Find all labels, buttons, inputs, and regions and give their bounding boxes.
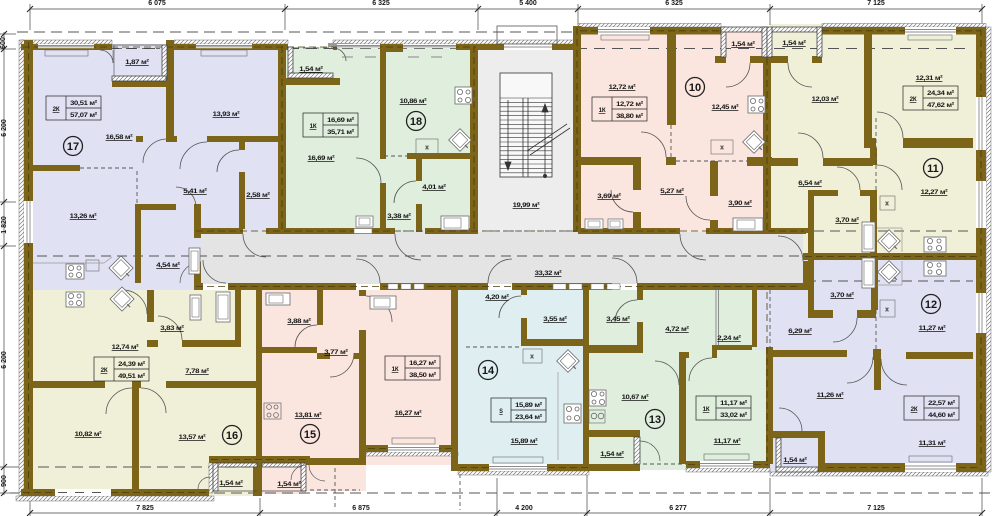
- svg-text:6,29 м²: 6,29 м²: [788, 328, 813, 335]
- svg-text:10: 10: [689, 82, 701, 94]
- svg-text:12,31 м²: 12,31 м²: [916, 75, 944, 82]
- svg-text:12,74 м²: 12,74 м²: [112, 344, 140, 351]
- svg-text:16,27 м²: 16,27 м²: [395, 410, 423, 417]
- svg-text:15,89 м²: 15,89 м²: [511, 438, 539, 445]
- svg-text:1К: 1К: [310, 123, 318, 130]
- svg-text:12: 12: [925, 299, 937, 311]
- svg-text:2К: 2К: [101, 367, 109, 374]
- svg-text:10,82 м²: 10,82 м²: [75, 431, 103, 438]
- svg-text:18: 18: [410, 116, 422, 128]
- svg-text:57,07 м²: 57,07 м²: [70, 112, 98, 119]
- svg-text:44,60 м²: 44,60 м²: [928, 412, 956, 419]
- svg-text:30,51 м²: 30,51 м²: [70, 100, 98, 107]
- svg-text:7,78 м²: 7,78 м²: [185, 368, 210, 375]
- svg-text:10,67 м²: 10,67 м²: [622, 394, 650, 401]
- svg-text:3,90 м²: 3,90 м²: [728, 200, 753, 207]
- svg-text:7 125: 7 125: [867, 0, 885, 7]
- svg-text:1,54 м²: 1,54 м²: [219, 480, 244, 487]
- svg-text:2К: 2К: [53, 106, 61, 113]
- svg-text:2К: 2К: [911, 406, 919, 413]
- svg-text:1,54 м²: 1,54 м²: [299, 66, 324, 73]
- svg-text:4,20 м²: 4,20 м²: [485, 294, 510, 301]
- svg-text:11,31 м²: 11,31 м²: [919, 440, 947, 447]
- svg-text:7 125: 7 125: [867, 505, 885, 512]
- svg-text:16,27 м²: 16,27 м²: [409, 360, 437, 367]
- svg-text:1,87 м²: 1,87 м²: [125, 59, 150, 66]
- svg-text:6 200: 6 200: [1, 351, 8, 369]
- svg-text:15: 15: [304, 429, 316, 441]
- svg-text:600: 600: [0, 37, 7, 49]
- svg-text:900: 900: [1, 475, 8, 487]
- svg-text:4,01 м²: 4,01 м²: [422, 184, 447, 191]
- svg-text:3,69 м²: 3,69 м²: [597, 193, 622, 200]
- svg-text:3,77 м²: 3,77 м²: [324, 349, 349, 356]
- svg-text:1,54 м²: 1,54 м²: [600, 451, 625, 458]
- svg-text:6 200: 6 200: [1, 119, 8, 137]
- svg-text:12,27 м²: 12,27 м²: [921, 189, 949, 196]
- svg-text:3,55 м²: 3,55 м²: [543, 316, 568, 323]
- svg-text:13,81 м²: 13,81 м²: [295, 412, 323, 419]
- svg-text:2,24 м²: 2,24 м²: [717, 335, 742, 342]
- svg-text:7 825: 7 825: [136, 505, 154, 512]
- svg-text:33,32 м²: 33,32 м²: [535, 270, 563, 277]
- svg-text:4,54 м²: 4,54 м²: [156, 262, 181, 269]
- svg-text:24,39 м²: 24,39 м²: [118, 361, 146, 368]
- svg-text:3,45 м²: 3,45 м²: [606, 316, 631, 323]
- svg-text:15,89 м²: 15,89 м²: [515, 402, 543, 409]
- svg-text:6 875: 6 875: [352, 505, 370, 512]
- svg-text:11,17 м²: 11,17 м²: [714, 438, 742, 445]
- svg-text:x: x: [721, 145, 724, 151]
- svg-text:5 400: 5 400: [519, 0, 537, 7]
- svg-text:6,54 м²: 6,54 м²: [798, 180, 823, 187]
- svg-text:16,69 м²: 16,69 м²: [327, 117, 355, 124]
- svg-text:10,86 м²: 10,86 м²: [400, 98, 428, 105]
- svg-text:2,58 м²: 2,58 м²: [246, 192, 271, 199]
- svg-text:1,54 м²: 1,54 м²: [782, 40, 807, 47]
- svg-text:1 820: 1 820: [1, 216, 8, 234]
- svg-text:1К: 1К: [703, 406, 711, 413]
- svg-text:11,26 м²: 11,26 м²: [817, 392, 845, 399]
- svg-text:13,57 м²: 13,57 м²: [179, 434, 207, 441]
- svg-text:16,58 м²: 16,58 м²: [106, 134, 134, 141]
- svg-text:5,27 м²: 5,27 м²: [660, 188, 685, 195]
- svg-text:1,54 м²: 1,54 м²: [277, 481, 302, 488]
- svg-text:35,71 м²: 35,71 м²: [327, 129, 355, 136]
- svg-text:5,41 м²: 5,41 м²: [183, 188, 208, 195]
- svg-text:x: x: [886, 307, 889, 313]
- svg-text:x: x: [886, 201, 889, 207]
- svg-text:14: 14: [482, 365, 495, 377]
- svg-text:24,34 м²: 24,34 м²: [927, 90, 955, 97]
- svg-text:11: 11: [927, 163, 939, 175]
- svg-text:3,88 м²: 3,88 м²: [287, 318, 312, 325]
- svg-text:6 325: 6 325: [665, 0, 683, 7]
- svg-text:3,70 м²: 3,70 м²: [835, 217, 860, 224]
- svg-text:47,62 м²: 47,62 м²: [927, 102, 955, 109]
- svg-text:3,83 м²: 3,83 м²: [160, 325, 185, 332]
- svg-text:12,72 м²: 12,72 м²: [616, 101, 644, 108]
- svg-text:3,38 м²: 3,38 м²: [387, 213, 412, 220]
- svg-text:33,02 м²: 33,02 м²: [720, 412, 748, 419]
- svg-text:2К: 2К: [910, 96, 918, 103]
- svg-text:22,57 м²: 22,57 м²: [928, 400, 956, 407]
- svg-text:6 075: 6 075: [148, 0, 166, 7]
- svg-text:38,80 м²: 38,80 м²: [616, 113, 644, 120]
- svg-text:38,50 м²: 38,50 м²: [409, 372, 437, 379]
- svg-text:49,51 м²: 49,51 м²: [118, 373, 146, 380]
- svg-text:3,70 м²: 3,70 м²: [830, 292, 855, 299]
- svg-text:1,54 м²: 1,54 м²: [783, 457, 808, 464]
- svg-text:x: x: [426, 145, 429, 151]
- svg-text:6 325: 6 325: [372, 0, 390, 7]
- svg-text:13,26 м²: 13,26 м²: [70, 213, 98, 220]
- svg-text:12,45 м²: 12,45 м²: [712, 104, 740, 111]
- svg-text:16: 16: [226, 430, 238, 442]
- svg-text:19,99 м²: 19,99 м²: [513, 202, 541, 209]
- svg-text:11,27 м²: 11,27 м²: [919, 325, 947, 332]
- svg-text:13,93 м²: 13,93 м²: [213, 111, 241, 118]
- svg-text:1К: 1К: [599, 107, 607, 114]
- svg-text:4,72 м²: 4,72 м²: [665, 326, 690, 333]
- svg-text:6 277: 6 277: [669, 505, 687, 512]
- svg-text:1,54 м²: 1,54 м²: [731, 41, 756, 48]
- svg-text:23,64 м²: 23,64 м²: [515, 414, 543, 421]
- svg-text:16,69 м²: 16,69 м²: [308, 155, 336, 162]
- svg-text:12,72 м²: 12,72 м²: [609, 84, 637, 91]
- svg-text:4 200: 4 200: [515, 505, 533, 512]
- svg-text:x: x: [531, 354, 534, 360]
- svg-text:12,03 м²: 12,03 м²: [812, 96, 840, 103]
- svg-text:13: 13: [649, 414, 661, 426]
- svg-text:1К: 1К: [392, 366, 400, 373]
- svg-text:11,17 м²: 11,17 м²: [720, 400, 748, 407]
- svg-text:17: 17: [67, 141, 79, 153]
